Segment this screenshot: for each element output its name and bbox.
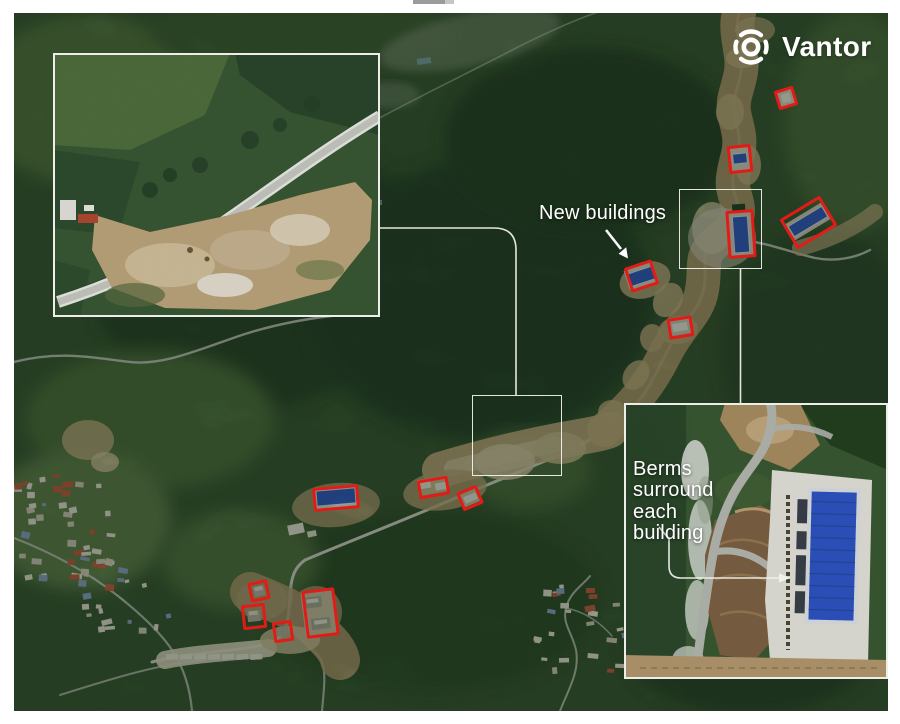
highlight-box (666, 315, 694, 340)
highlight-box (727, 144, 754, 174)
vantor-logo: Vantor (731, 27, 872, 67)
highlight-box (247, 579, 271, 603)
link-box (472, 395, 562, 476)
highlight-box (241, 602, 267, 629)
highlight-box (301, 587, 340, 639)
berms-label: Berms surround each building (633, 459, 730, 545)
vantor-wordmark: Vantor (782, 31, 872, 63)
annotated-satellite-image: New buildings Berms surround each buildi… (0, 0, 900, 724)
ui-artifact-2 (445, 0, 454, 4)
highlight-box (725, 209, 756, 259)
highlight-box (272, 619, 295, 643)
highlight-box (312, 484, 360, 512)
vantor-aperture-icon (731, 27, 771, 67)
new-buildings-label: New buildings (539, 202, 666, 225)
inset-frame (53, 53, 380, 317)
